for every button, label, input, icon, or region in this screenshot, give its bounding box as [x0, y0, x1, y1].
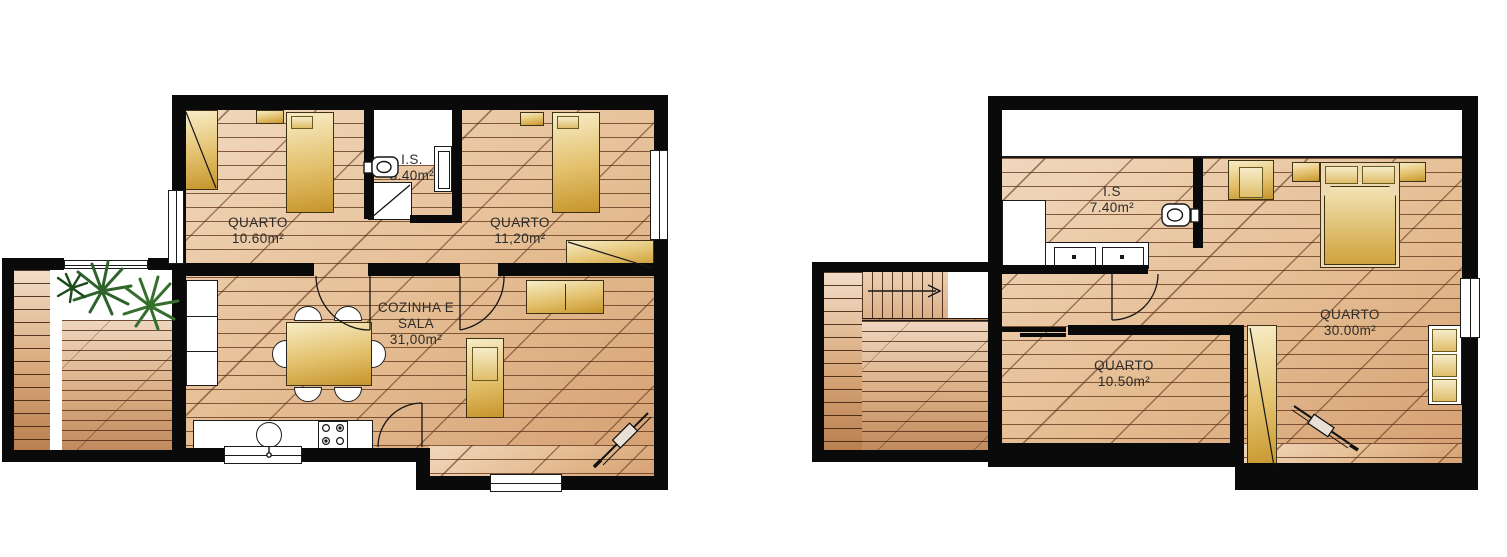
dresser-inner: [1239, 167, 1263, 198]
armchair: [466, 338, 504, 418]
room-label-bedroom-small: QUARTO 10.50m²: [1062, 358, 1186, 390]
bed-cover: [1324, 186, 1396, 265]
vanity-sink: [1102, 247, 1144, 267]
bathroom-wall-bottom: [1002, 265, 1148, 274]
terrace-wall-bottom: [2, 450, 186, 462]
bathroom-wall-bottom: [410, 215, 462, 223]
stairs-left-run: [824, 272, 862, 450]
pillow: [291, 116, 313, 129]
room-name: I.S: [1103, 184, 1121, 199]
bed-double: [1320, 162, 1400, 268]
nightstand: [1292, 162, 1320, 182]
terrace-planter-area: [62, 270, 174, 320]
room-name: COZINHA E: [378, 300, 454, 315]
terrace-wall-top-a: [2, 258, 64, 270]
outer-wall-top: [988, 96, 1478, 110]
room-area: 30.00m²: [1324, 323, 1376, 338]
room-name: QUARTO: [490, 215, 550, 230]
dresser: [1228, 160, 1274, 200]
window-mullion: [491, 483, 561, 484]
room-label-bathroom1: I.S. 3.40m²: [368, 152, 456, 184]
window-right-wall: [650, 150, 668, 240]
pillow: [1362, 166, 1395, 184]
sofa-cushion: [1432, 379, 1457, 402]
terrace-stringer: [50, 270, 62, 450]
window-right-wall: [1460, 278, 1480, 338]
window-left-wall: [168, 190, 184, 264]
terrace-sliding-door-line: [65, 265, 147, 266]
wardrobe-tall: [1247, 325, 1277, 470]
window-kitchen: [224, 446, 302, 464]
window-living-south: [490, 474, 562, 492]
sliding-door-leaf-a: [1002, 327, 1066, 332]
room-label-bathroom2: I.S 7.40m²: [1060, 184, 1164, 216]
room-area: 3.40m²: [390, 168, 434, 183]
room-area: 10.50m²: [1098, 374, 1150, 389]
sliding-door-leaf-b: [1020, 333, 1066, 337]
sofa-cushion: [1432, 329, 1457, 352]
outer-wall-bottom-b: [1235, 463, 1478, 490]
sink-drain: [1120, 255, 1124, 259]
room-label-bedroom1: QUARTO 10.60m²: [198, 215, 318, 247]
terrace-wall-top: [812, 262, 990, 272]
room-label-living: COZINHA E SALA 31,00m²: [356, 300, 476, 348]
nightstand: [1398, 162, 1426, 182]
nightstand: [520, 112, 544, 126]
sofa-wall: [1428, 325, 1462, 405]
hall-wall-bottom: [1068, 325, 1240, 335]
kitchen-stove: [318, 421, 348, 449]
window-mullion: [659, 151, 660, 239]
vanity-sink: [1054, 247, 1096, 267]
terrace-wall-bottom: [812, 450, 1002, 462]
terrace-sliding-door: [64, 260, 148, 269]
room-label-bedroom2: QUARTO 11,20m²: [458, 215, 582, 247]
room-name: QUARTO: [1094, 358, 1154, 373]
outer-wall-top: [172, 95, 668, 110]
floor-plan-canvas: QUARTO 10.60m² I.S. 3.40m² QUARTO 11,20m…: [0, 0, 1507, 557]
pillow: [1325, 166, 1358, 184]
sofa-cushion-divider: [565, 284, 566, 310]
room-label-bedroom-master: QUARTO 30.00m²: [1288, 307, 1412, 339]
outer-wall-left: [172, 95, 186, 462]
room-area: 31,00m²: [390, 332, 442, 347]
shower-tray: [1002, 200, 1046, 268]
window-mullion: [176, 191, 177, 263]
wardrobe: [184, 110, 218, 190]
cabinet-divider: [187, 351, 217, 352]
cabinet-divider: [187, 316, 217, 317]
terrace-deck: [62, 320, 174, 450]
terrace-wall-left: [812, 262, 824, 462]
terrace-wall-left: [2, 258, 14, 462]
kitchen-cabinet-column: [186, 280, 218, 386]
bathroom-wall-right: [1193, 158, 1203, 248]
living-floor-extension: [429, 445, 654, 476]
armchair-seat: [472, 347, 498, 381]
kitchen-sink: [256, 422, 282, 448]
outer-wall-bottom-a: [988, 443, 1240, 467]
bathroom-door-panel: [368, 182, 412, 220]
room-area: 7.40m²: [1090, 200, 1134, 215]
room-name: SALA: [398, 316, 434, 331]
sofa-loveseat: [526, 280, 604, 314]
pillow: [557, 116, 579, 129]
room-name: I.S.: [401, 152, 423, 167]
window-mullion: [1470, 279, 1471, 337]
sink-drain: [1072, 255, 1076, 259]
terrace-deck: [862, 318, 990, 450]
outer-wall-left: [988, 96, 1002, 467]
window-mullion: [225, 455, 301, 456]
sofa-cushion: [1432, 354, 1457, 377]
room-area: 10.60m²: [232, 231, 284, 246]
void-area: [1002, 110, 1462, 158]
wall-bedrooms-living-b: [368, 263, 460, 276]
bed-single: [286, 112, 334, 213]
wall-bedrooms-living-c: [498, 263, 654, 276]
room-name: QUARTO: [228, 215, 288, 230]
terrace-stairs: [14, 270, 50, 450]
room-name: QUARTO: [1320, 307, 1380, 322]
stairs-upper-run: [862, 272, 948, 318]
room-area: 11,20m²: [494, 231, 545, 246]
bed-single: [552, 112, 600, 213]
wall-bedrooms-living-a: [186, 263, 314, 276]
nightstand: [256, 110, 284, 124]
